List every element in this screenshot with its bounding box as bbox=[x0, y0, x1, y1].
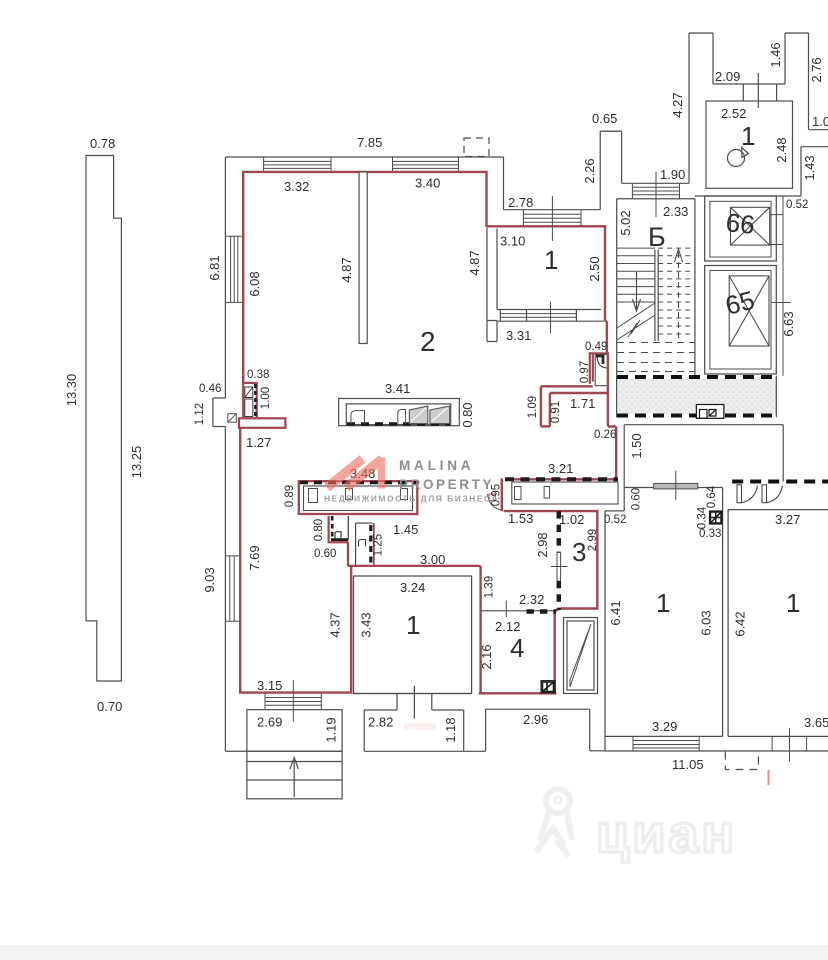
svg-text:1.18: 1.18 bbox=[443, 717, 458, 742]
svg-text:0.64: 0.64 bbox=[706, 485, 718, 508]
svg-text:1.00: 1.00 bbox=[260, 387, 272, 409]
svg-text:6.81: 6.81 bbox=[207, 255, 222, 280]
svg-text:3: 3 bbox=[572, 537, 586, 567]
svg-text:4: 4 bbox=[510, 633, 524, 663]
svg-text:3.32: 3.32 bbox=[284, 179, 309, 194]
svg-text:2.82: 2.82 bbox=[368, 715, 393, 730]
svg-text:2.52: 2.52 bbox=[721, 106, 746, 121]
svg-text:2: 2 bbox=[420, 326, 436, 357]
svg-text:4.37: 4.37 bbox=[328, 612, 343, 637]
svg-text:0.80: 0.80 bbox=[313, 519, 325, 541]
svg-text:1.12: 1.12 bbox=[194, 403, 206, 425]
svg-text:3.43: 3.43 bbox=[359, 612, 374, 637]
svg-text:3.27: 3.27 bbox=[775, 512, 800, 527]
svg-text:0.34: 0.34 bbox=[697, 506, 709, 529]
svg-text:1.45: 1.45 bbox=[393, 522, 418, 537]
svg-text:2.32: 2.32 bbox=[519, 592, 544, 607]
svg-text:0.78: 0.78 bbox=[90, 136, 115, 151]
svg-text:6.42: 6.42 bbox=[733, 611, 748, 636]
svg-text:3.41: 3.41 bbox=[385, 381, 410, 396]
svg-text:1: 1 bbox=[656, 588, 670, 618]
svg-text:6.03: 6.03 bbox=[699, 610, 714, 635]
svg-text:1: 1 bbox=[406, 610, 420, 640]
svg-text:0.52: 0.52 bbox=[604, 514, 626, 526]
svg-text:3.31: 3.31 bbox=[506, 328, 531, 343]
svg-text:3.29: 3.29 bbox=[652, 719, 677, 734]
svg-text:0.49: 0.49 bbox=[585, 341, 607, 353]
svg-text:2.98: 2.98 bbox=[535, 532, 550, 557]
svg-text:1: 1 bbox=[741, 121, 755, 151]
svg-text:0.80: 0.80 bbox=[460, 402, 475, 427]
svg-text:1.27: 1.27 bbox=[246, 435, 271, 450]
svg-text:1.46: 1.46 bbox=[768, 42, 783, 67]
svg-text:3.00: 3.00 bbox=[420, 552, 445, 567]
svg-text:0.65: 0.65 bbox=[592, 111, 617, 126]
svg-text:2.69: 2.69 bbox=[257, 715, 282, 730]
svg-text:1.09: 1.09 bbox=[527, 396, 539, 418]
svg-text:5.02: 5.02 bbox=[618, 210, 633, 235]
svg-text:1.53: 1.53 bbox=[508, 511, 533, 526]
svg-text:7.69: 7.69 bbox=[247, 545, 262, 570]
svg-text:MALINA: MALINA bbox=[399, 458, 474, 473]
svg-text:2.50: 2.50 bbox=[587, 256, 602, 281]
svg-text:3.15: 3.15 bbox=[257, 678, 282, 693]
svg-text:0.70: 0.70 bbox=[97, 699, 122, 714]
svg-text:0.26: 0.26 bbox=[594, 429, 616, 441]
svg-text:3.24: 3.24 bbox=[400, 580, 425, 595]
svg-text:2.48: 2.48 bbox=[774, 137, 789, 162]
svg-text:1.43: 1.43 bbox=[802, 155, 817, 180]
svg-text:13.30: 13.30 bbox=[64, 374, 79, 407]
svg-text:2.99: 2.99 bbox=[587, 529, 599, 551]
svg-text:2.76: 2.76 bbox=[809, 57, 824, 82]
svg-text:2.33: 2.33 bbox=[663, 204, 688, 219]
svg-text:9.03: 9.03 bbox=[202, 567, 217, 592]
svg-text:0.89: 0.89 bbox=[284, 485, 296, 507]
svg-text:2.16: 2.16 bbox=[479, 644, 494, 669]
svg-text:2.78: 2.78 bbox=[508, 195, 533, 210]
svg-text:3.40: 3.40 bbox=[415, 176, 440, 191]
svg-text:0.97: 0.97 bbox=[579, 361, 591, 383]
svg-text:6.41: 6.41 bbox=[608, 600, 623, 625]
svg-text:3.21: 3.21 bbox=[548, 461, 573, 476]
svg-text:1.39: 1.39 bbox=[484, 576, 496, 598]
svg-text:4.87: 4.87 bbox=[339, 257, 354, 282]
svg-text:1: 1 bbox=[786, 588, 800, 618]
svg-text:1.0: 1.0 bbox=[812, 114, 828, 129]
svg-text:0.38: 0.38 bbox=[247, 369, 269, 381]
svg-text:2.12: 2.12 bbox=[495, 619, 520, 634]
svg-text:3.10: 3.10 bbox=[500, 234, 525, 249]
svg-text:6.63: 6.63 bbox=[781, 311, 796, 336]
svg-text:1.02: 1.02 bbox=[559, 512, 584, 527]
svg-text:11.05: 11.05 bbox=[672, 757, 704, 772]
svg-text:0.91: 0.91 bbox=[550, 401, 562, 423]
svg-text:НЕДВИЖИМОСТЬ ДЛЯ БИЗНЕСА: НЕДВИЖИМОСТЬ ДЛЯ БИЗНЕСА bbox=[324, 494, 499, 504]
svg-text:0.33: 0.33 bbox=[699, 528, 721, 540]
svg-text:циан: циан bbox=[596, 804, 737, 864]
svg-text:13.25: 13.25 bbox=[129, 446, 144, 479]
svg-text:1.25: 1.25 bbox=[373, 534, 385, 556]
svg-text:0.60: 0.60 bbox=[314, 548, 336, 560]
svg-text:2.26: 2.26 bbox=[582, 158, 597, 183]
svg-text:0.46: 0.46 bbox=[199, 383, 221, 395]
svg-text:Б: Б bbox=[648, 222, 666, 252]
svg-text:66: 66 bbox=[724, 207, 756, 240]
svg-text:1: 1 bbox=[544, 245, 558, 275]
svg-text:1.90: 1.90 bbox=[660, 167, 685, 182]
svg-text:4.87: 4.87 bbox=[467, 250, 482, 275]
svg-text:1.50: 1.50 bbox=[629, 433, 644, 458]
svg-text:2.96: 2.96 bbox=[523, 712, 548, 727]
svg-text:4.27: 4.27 bbox=[670, 92, 685, 117]
svg-text:3.65: 3.65 bbox=[804, 715, 828, 730]
svg-text:1.19: 1.19 bbox=[324, 717, 339, 742]
svg-text:0.52: 0.52 bbox=[786, 199, 808, 211]
svg-text:2.09: 2.09 bbox=[715, 69, 740, 84]
svg-text:PROPERTY: PROPERTY bbox=[399, 477, 494, 492]
svg-text:1.71: 1.71 bbox=[570, 396, 595, 411]
svg-text:6.08: 6.08 bbox=[247, 271, 262, 296]
svg-text:0.60: 0.60 bbox=[631, 488, 643, 510]
svg-text:7.85: 7.85 bbox=[357, 135, 382, 150]
